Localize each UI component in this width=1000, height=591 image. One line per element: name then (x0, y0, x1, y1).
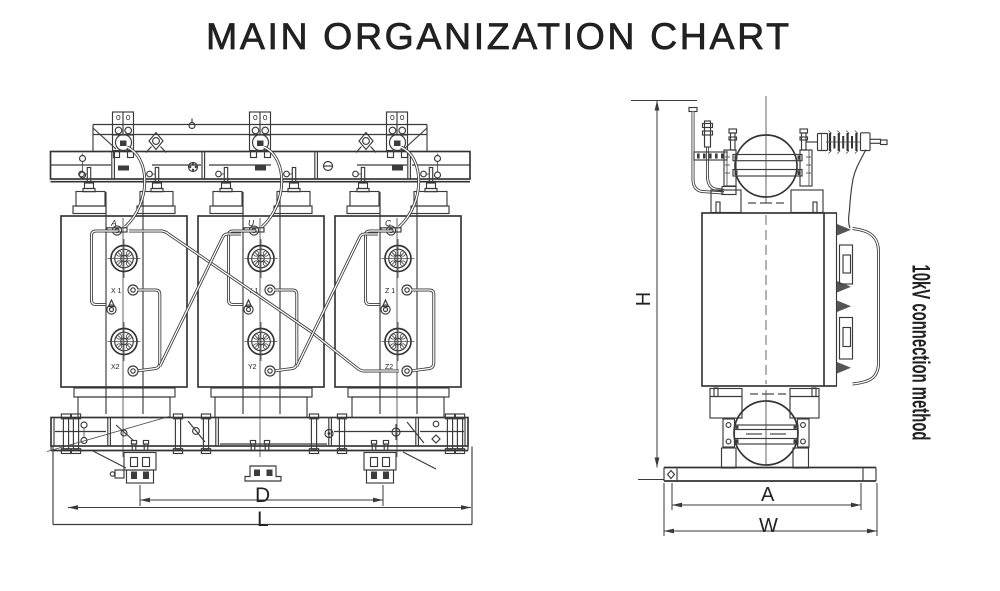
svg-text:MAIN ORGANIZATION CHART: MAIN ORGANIZATION CHART (206, 15, 789, 57)
svg-text:X2: X2 (111, 364, 120, 371)
svg-text:D: D (255, 484, 270, 507)
svg-text:L: L (257, 508, 269, 531)
svg-text:W: W (759, 515, 778, 537)
svg-text:10kV connection method: 10kV connection method (907, 265, 935, 441)
svg-text:A: A (110, 218, 117, 228)
svg-text:Z 1: Z 1 (385, 288, 395, 295)
svg-text:C: C (385, 218, 392, 228)
svg-text:A: A (761, 484, 775, 506)
svg-text:H: H (633, 292, 655, 306)
svg-text:X 1: X 1 (111, 288, 122, 295)
svg-text:U: U (248, 218, 255, 228)
svg-text:Y2: Y2 (248, 364, 257, 371)
